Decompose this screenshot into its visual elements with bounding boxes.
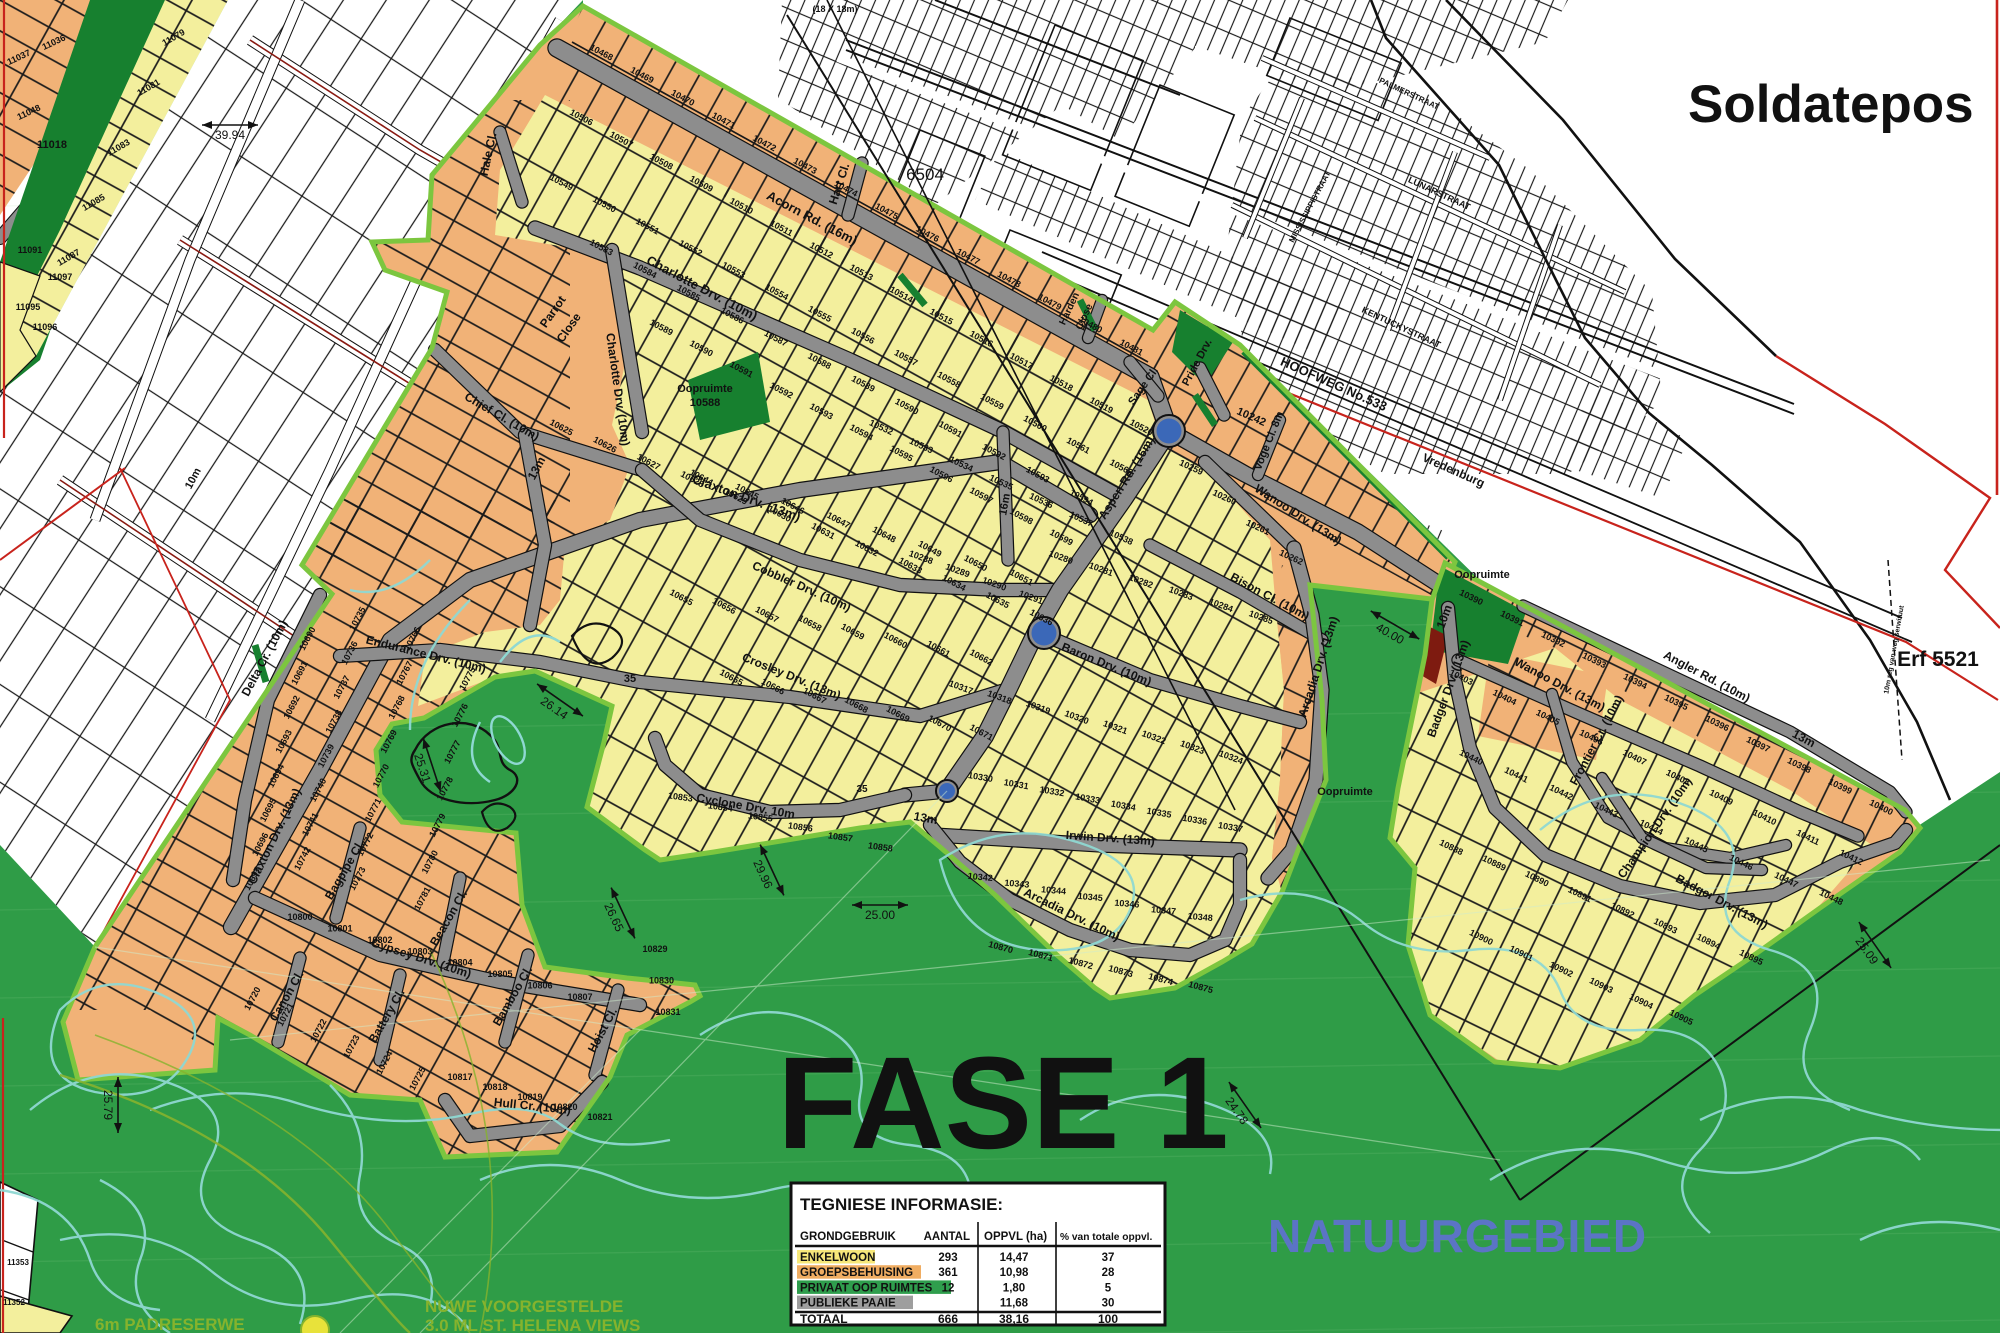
svg-text:GRONDGEBRUIK: GRONDGEBRUIK	[800, 1231, 897, 1243]
svg-text:GROEPSBEHUISING: GROEPSBEHUISING	[800, 1267, 913, 1279]
svg-text:10821: 10821	[587, 1112, 612, 1122]
svg-text:10588: 10588	[690, 397, 721, 409]
svg-text:NUWE VOORGESTELDE: NUWE VOORGESTELDE	[425, 1297, 623, 1316]
svg-text:Soldatepos: Soldatepos	[1688, 75, 1974, 134]
svg-text:NATUURGEBIED: NATUURGEBIED	[1268, 1210, 1647, 1262]
svg-text:10819: 10819	[517, 1092, 542, 1102]
svg-text:Oopruimte: Oopruimte	[677, 383, 733, 395]
svg-text:10806: 10806	[527, 981, 552, 991]
svg-text:11097: 11097	[48, 272, 73, 282]
svg-text:14,47: 14,47	[1000, 1252, 1029, 1264]
svg-text:10818: 10818	[482, 1082, 507, 1092]
svg-text:35: 35	[624, 673, 636, 685]
svg-text:37: 37	[1102, 1252, 1115, 1264]
svg-text:293: 293	[938, 1252, 957, 1264]
svg-text:10830: 10830	[649, 976, 674, 986]
svg-text:10,98: 10,98	[1000, 1267, 1029, 1279]
svg-text:11096: 11096	[33, 322, 58, 332]
svg-text:666: 666	[938, 1312, 958, 1326]
svg-text:10804: 10804	[447, 958, 472, 968]
svg-text:10831: 10831	[655, 1007, 680, 1017]
svg-text:10800: 10800	[287, 912, 312, 922]
svg-text:10807: 10807	[567, 992, 592, 1002]
svg-text:38,16: 38,16	[999, 1312, 1029, 1326]
svg-text:11018: 11018	[37, 139, 67, 151]
svg-text:28: 28	[1102, 1267, 1115, 1279]
svg-text:PUBLIEKE PAAIE: PUBLIEKE PAAIE	[800, 1298, 896, 1310]
svg-text:5: 5	[1105, 1282, 1112, 1294]
svg-text:11352: 11352	[3, 1298, 25, 1307]
svg-text:6m PADRESERWE: 6m PADRESERWE	[95, 1315, 245, 1333]
svg-text:361: 361	[938, 1267, 958, 1279]
svg-text:OPPVL (ha): OPPVL (ha)	[984, 1231, 1047, 1243]
svg-text:Oopruimte: Oopruimte	[1317, 786, 1373, 798]
svg-text:10801: 10801	[327, 923, 352, 933]
svg-text:11095: 11095	[16, 302, 41, 312]
svg-text:25.79: 25.79	[101, 1090, 115, 1120]
svg-text:% van totale oppvl.: % van totale oppvl.	[1060, 1232, 1152, 1243]
svg-text:10803: 10803	[407, 946, 432, 956]
svg-text:TOTAAL: TOTAAL	[800, 1312, 848, 1326]
svg-text:Erf 5521: Erf 5521	[1897, 648, 1979, 671]
svg-text:10805: 10805	[487, 969, 512, 979]
svg-text:6504: 6504	[906, 165, 944, 184]
svg-text:ENKELWOON: ENKELWOON	[800, 1252, 875, 1264]
svg-text:39.94: 39.94	[215, 128, 245, 142]
svg-text:10820: 10820	[552, 1102, 577, 1112]
svg-text:12: 12	[942, 1282, 955, 1294]
svg-text:1,80: 1,80	[1003, 1282, 1025, 1294]
svg-text:FASE 1: FASE 1	[777, 1029, 1228, 1176]
svg-text:25.00: 25.00	[865, 908, 895, 922]
svg-text:10829: 10829	[642, 944, 667, 954]
svg-text:Oopruimte: Oopruimte	[1454, 569, 1510, 581]
svg-text:11,68: 11,68	[1000, 1298, 1029, 1310]
svg-text:(18 X 18m): (18 X 18m)	[812, 4, 857, 14]
svg-text:TEGNIESE INFORMASIE:: TEGNIESE INFORMASIE:	[800, 1195, 1003, 1214]
svg-text:10817: 10817	[447, 1072, 472, 1082]
svg-text:AANTAL: AANTAL	[924, 1231, 970, 1243]
svg-text:11091: 11091	[18, 245, 43, 255]
svg-text:100: 100	[1098, 1312, 1118, 1326]
svg-text:10802: 10802	[367, 935, 392, 945]
svg-text:11353: 11353	[7, 1258, 29, 1267]
svg-text:PRIVAAT OOP RUIMTES: PRIVAAT OOP RUIMTES	[800, 1282, 933, 1294]
svg-text:35: 35	[856, 784, 868, 795]
svg-text:3.0 ML ST. HELENA VIEWS: 3.0 ML ST. HELENA VIEWS	[425, 1316, 640, 1333]
svg-text:30: 30	[1102, 1298, 1115, 1310]
